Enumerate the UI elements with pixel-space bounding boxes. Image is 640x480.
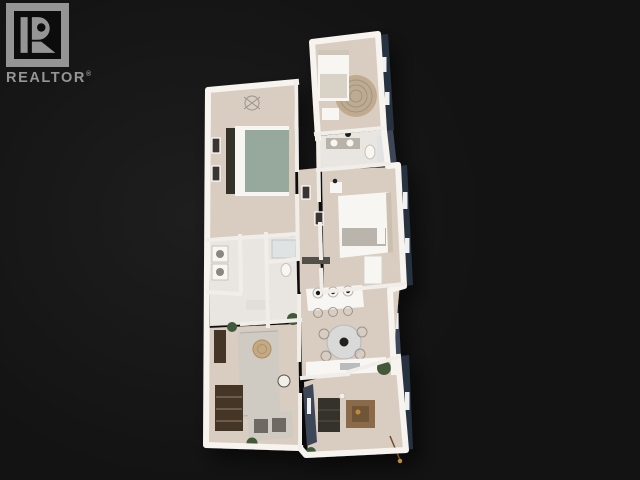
toilet	[281, 264, 291, 277]
floor-plan-3d-render	[0, 0, 640, 480]
realtor-wordmark: REALTOR®	[6, 68, 92, 85]
duvet	[245, 130, 289, 192]
dresser	[322, 108, 339, 120]
nightstand	[330, 182, 342, 193]
sofa	[318, 398, 340, 432]
fridge	[364, 256, 382, 284]
wall-art	[212, 166, 220, 181]
realtor-r-icon	[6, 3, 69, 67]
dollhouse-model	[206, 34, 413, 463]
pillow	[377, 198, 385, 220]
pillow	[377, 224, 385, 244]
vine-tip	[398, 459, 402, 463]
rattan-chair	[253, 340, 271, 358]
realtor-text: REALTOR	[6, 70, 86, 86]
potted-plant	[227, 322, 237, 332]
bookshelf	[215, 385, 243, 431]
counter-decor	[302, 257, 330, 264]
table-vase	[340, 338, 349, 347]
bed-headboard	[226, 128, 235, 194]
wall-art	[302, 186, 310, 199]
pillow	[236, 134, 245, 158]
dryer-door	[216, 268, 224, 276]
pillow	[236, 162, 245, 186]
wall-art	[212, 138, 220, 153]
media-console	[214, 330, 226, 363]
side-table	[278, 375, 290, 387]
entry-rug-inset	[254, 419, 268, 433]
sink	[331, 140, 338, 147]
table-tray	[352, 406, 369, 422]
sink	[347, 140, 354, 147]
blanket	[320, 74, 347, 98]
table-decor	[356, 410, 361, 415]
screenshot-root: REALTOR®	[0, 0, 640, 480]
toilet	[365, 145, 375, 159]
shower	[272, 240, 296, 258]
washer-door	[216, 250, 224, 258]
entry-rug-inset	[272, 418, 286, 432]
registered-mark: ®	[86, 71, 91, 78]
pillow	[321, 58, 346, 67]
lamp	[333, 179, 338, 184]
realtor-logo: REALTOR®	[6, 3, 92, 85]
floor-lamp	[339, 393, 345, 399]
